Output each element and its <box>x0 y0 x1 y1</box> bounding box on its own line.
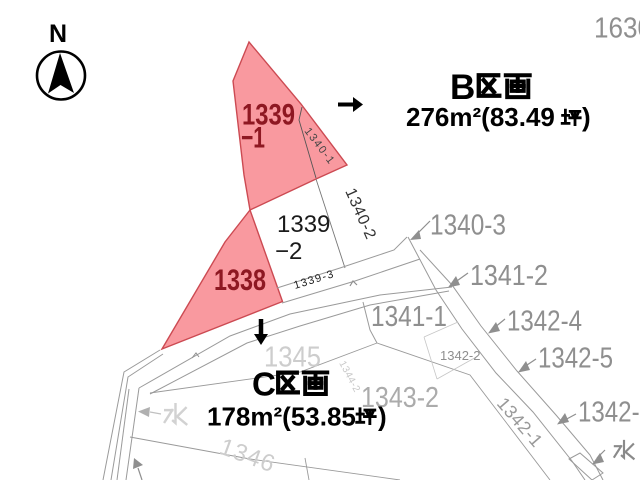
svg-text:1342-2: 1342-2 <box>440 348 480 363</box>
svg-text:1342-3: 1342-3 <box>578 397 640 429</box>
svg-text:1340-3: 1340-3 <box>430 210 506 242</box>
svg-text:C: C <box>252 366 276 403</box>
svg-text:1341-2: 1341-2 <box>470 260 548 292</box>
svg-text:1342-4: 1342-4 <box>507 306 582 338</box>
svg-text:178m²(53.85: 178m²(53.85 <box>207 402 356 432</box>
svg-text:−1: −1 <box>241 122 265 155</box>
svg-text:): ) <box>378 402 387 432</box>
svg-text:1630: 1630 <box>594 13 640 45</box>
svg-text:1341-1: 1341-1 <box>371 301 447 333</box>
svg-text:−2: −2 <box>275 238 302 265</box>
svg-text:276m²(83.49: 276m²(83.49 <box>406 102 555 132</box>
svg-text:N: N <box>49 20 67 48</box>
svg-text:): ) <box>582 102 591 132</box>
svg-text:1339: 1339 <box>277 211 330 238</box>
svg-text:1338: 1338 <box>214 264 266 297</box>
svg-text:1342-5: 1342-5 <box>538 343 613 375</box>
